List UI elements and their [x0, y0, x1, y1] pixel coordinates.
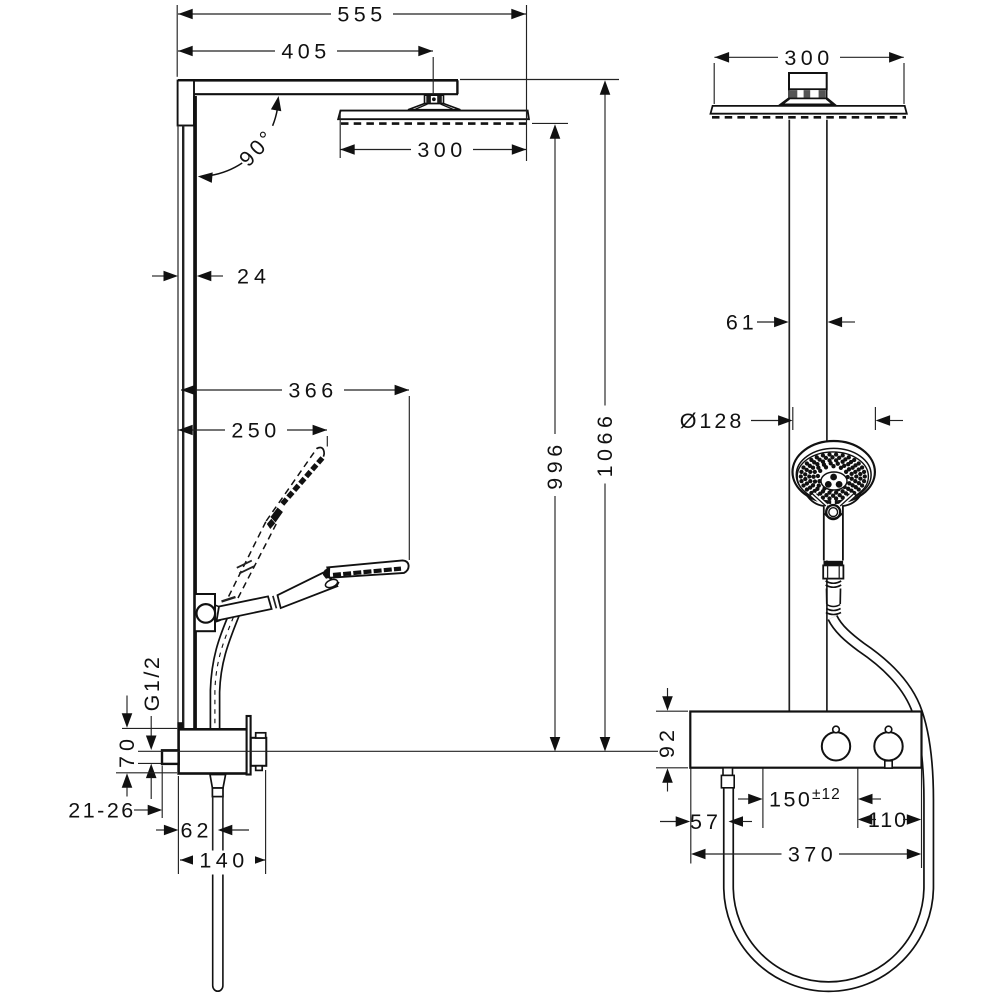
svg-text:300: 300: [417, 138, 466, 162]
svg-text:62: 62: [181, 819, 213, 843]
svg-text:1066: 1066: [593, 412, 617, 478]
svg-text:300: 300: [784, 46, 833, 70]
svg-text:366: 366: [288, 379, 337, 403]
svg-text:21-26: 21-26: [68, 799, 136, 823]
svg-text:150: 150: [769, 788, 812, 812]
svg-text:57: 57: [690, 810, 722, 834]
svg-text:370: 370: [788, 843, 837, 867]
svg-text:61: 61: [726, 311, 758, 335]
svg-text:Ø128: Ø128: [680, 409, 745, 433]
svg-text:250: 250: [231, 419, 280, 443]
svg-text:G1/2: G1/2: [140, 655, 164, 712]
svg-text:140: 140: [199, 849, 248, 873]
svg-text:70: 70: [115, 734, 139, 768]
svg-text:555: 555: [337, 3, 386, 27]
svg-text:±12: ±12: [812, 786, 841, 803]
svg-text:405: 405: [281, 40, 330, 64]
svg-text:110: 110: [868, 808, 908, 832]
svg-text:996: 996: [543, 440, 567, 489]
svg-text:24: 24: [237, 265, 271, 289]
svg-text:92: 92: [655, 726, 679, 758]
